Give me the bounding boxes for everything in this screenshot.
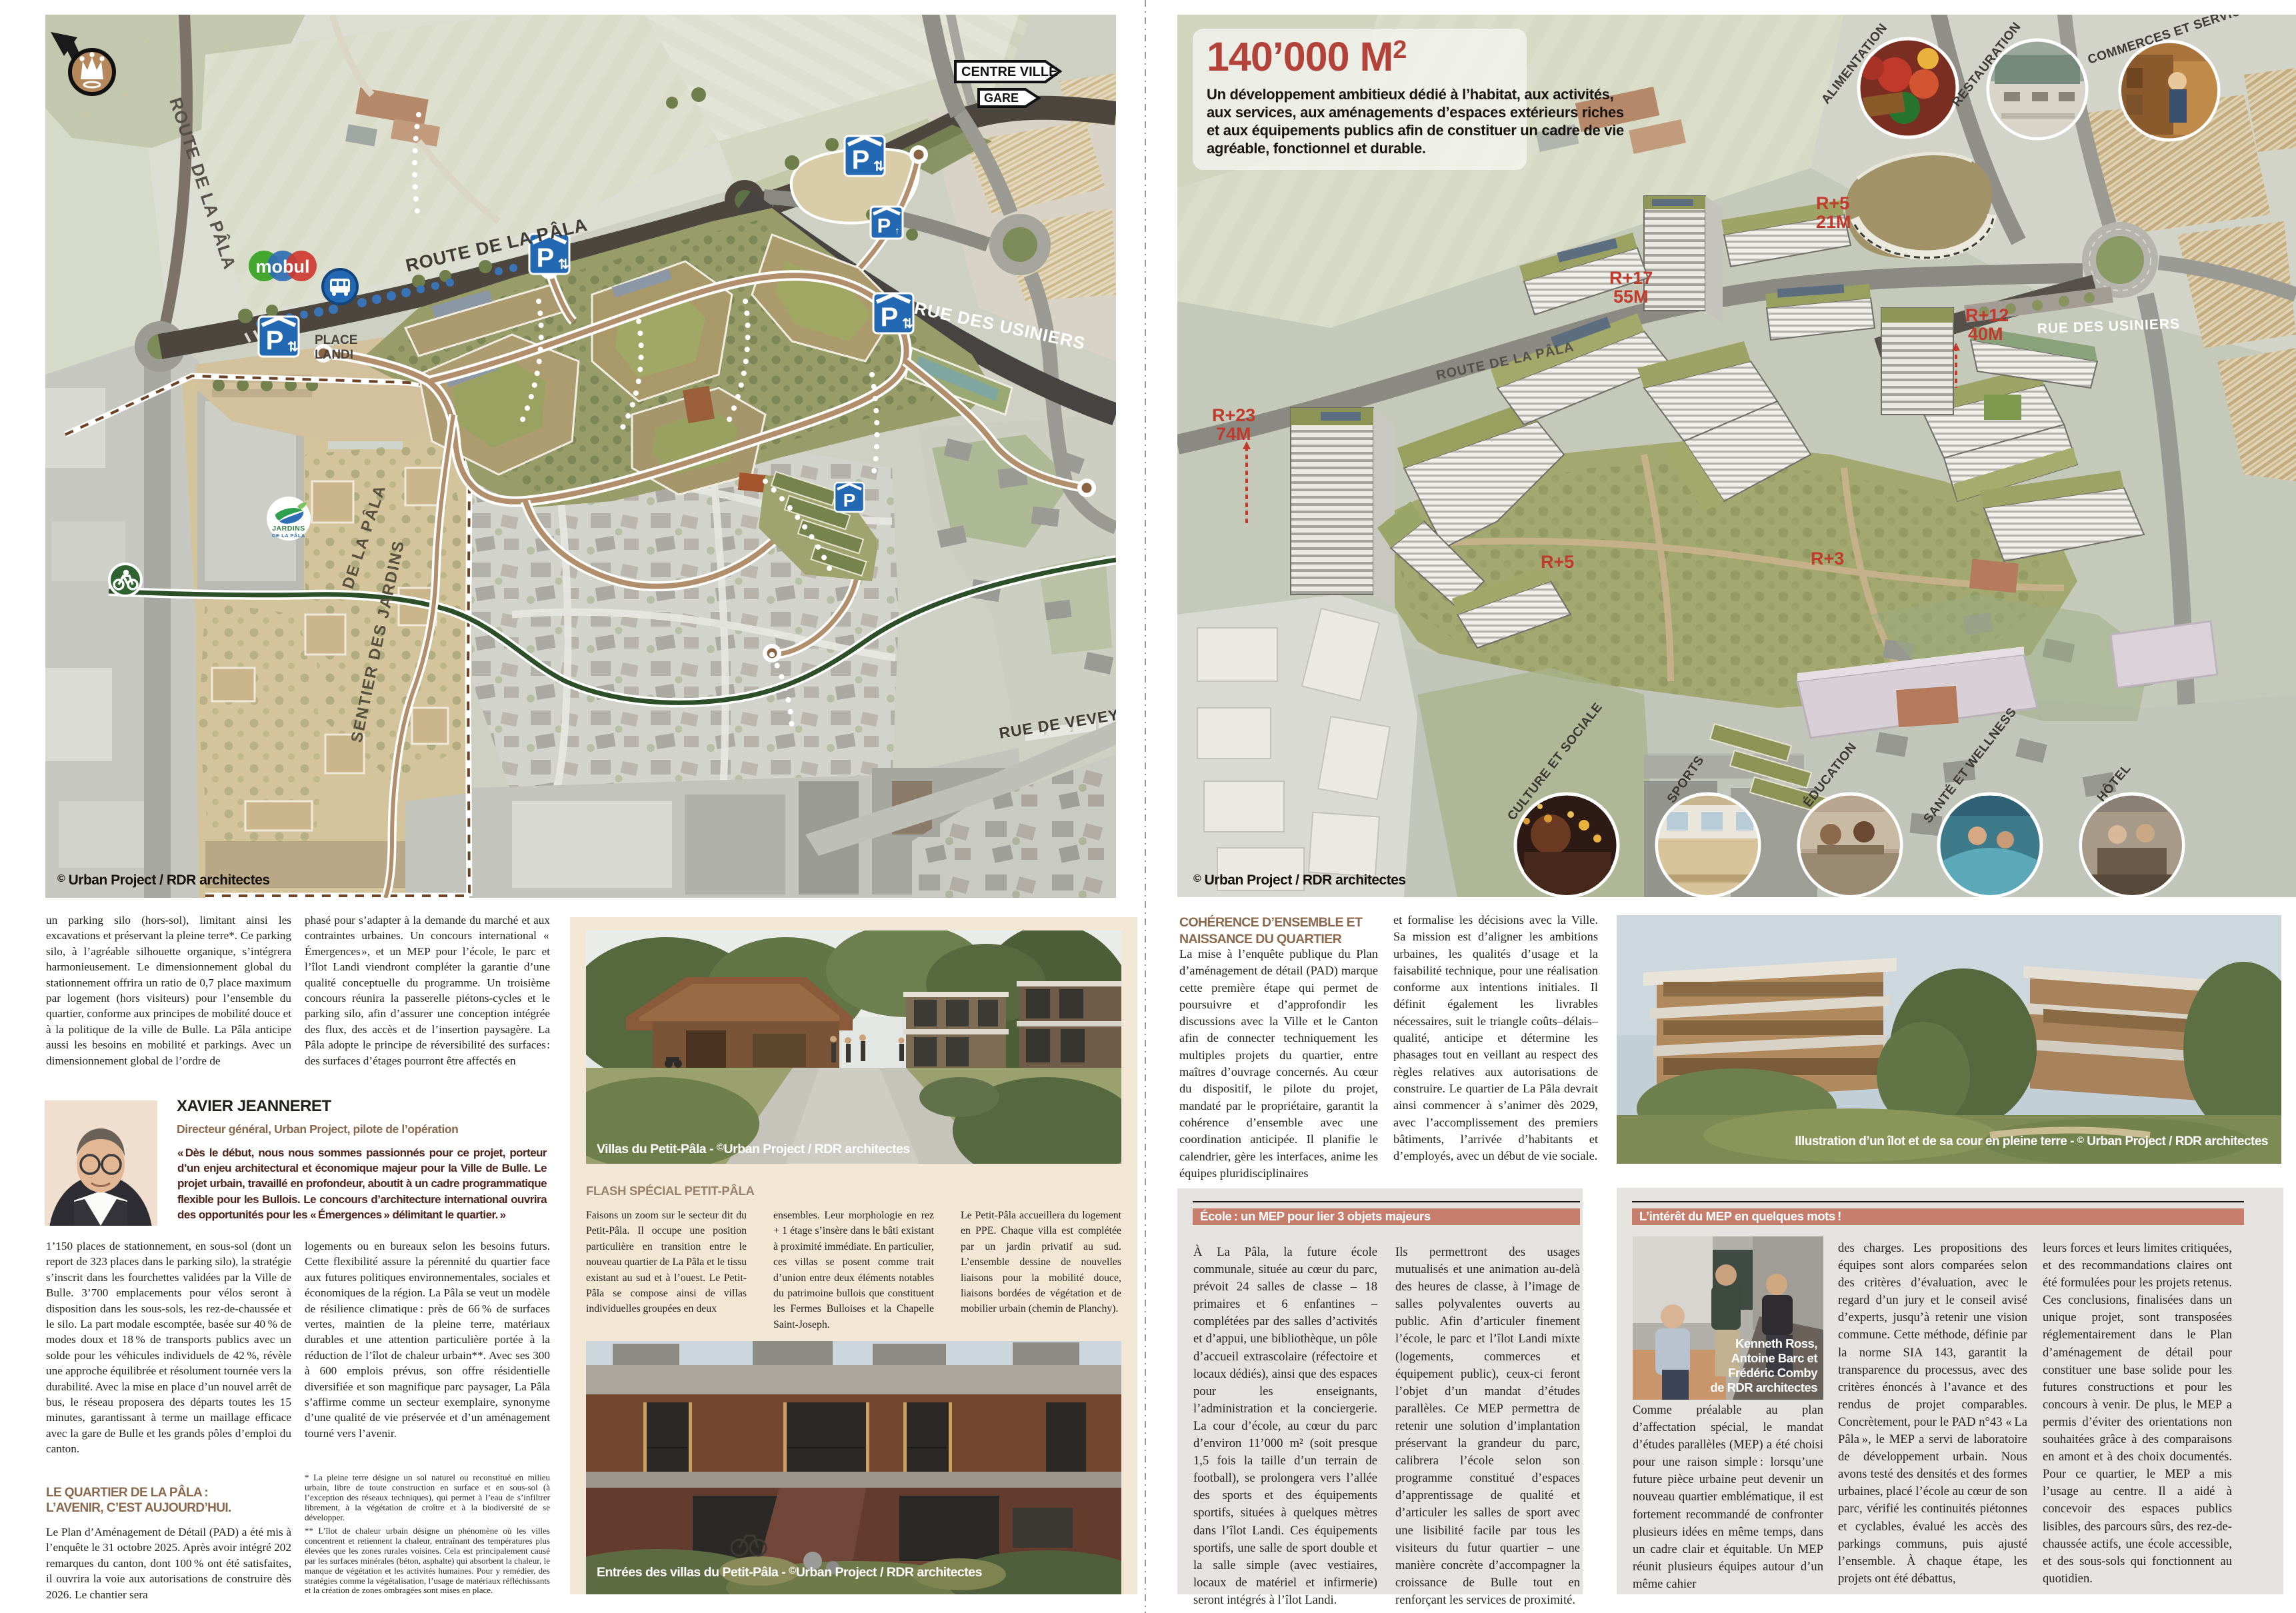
svg-text:DE LA PÂLA: DE LA PÂLA — [272, 533, 305, 539]
svg-text:P: P — [852, 145, 870, 175]
svg-text:LANDI: LANDI — [315, 348, 353, 362]
svg-text:agréable, fonctionnel et durab: agréable, fonctionnel et durable. — [1207, 140, 1426, 157]
svg-text:74M: 74M — [1216, 424, 1251, 444]
svg-text:⇅: ⇅ — [902, 317, 913, 331]
svg-text:R+12: R+12 — [1965, 305, 2009, 325]
svg-text:P: P — [881, 303, 899, 332]
svg-text:Un développement ambitieux déd: Un développement ambitieux dédié à l’hab… — [1207, 86, 1613, 103]
svg-text:R+23: R+23 — [1212, 405, 1255, 425]
svg-text:R+3: R+3 — [1811, 549, 1844, 569]
svg-text:55M: 55M — [1613, 287, 1649, 307]
svg-text:© Urban Project / RDR architec: © Urban Project / RDR architectes — [57, 872, 270, 888]
svg-text:↑: ↑ — [895, 225, 900, 237]
svg-text:21M: 21M — [1816, 212, 1851, 232]
svg-text:JARDINS: JARDINS — [272, 525, 305, 533]
svg-text:PLACE: PLACE — [315, 333, 357, 347]
svg-text:R+5: R+5 — [1816, 193, 1849, 213]
svg-text:© Urban Project / RDR architec: © Urban Project / RDR architectes — [1193, 872, 1406, 888]
svg-text:⇅: ⇅ — [287, 340, 299, 355]
svg-text:mobul: mobul — [256, 257, 310, 277]
svg-text:CENTRE VILLE: CENTRE VILLE — [961, 65, 1057, 79]
svg-text:40M: 40M — [1968, 324, 2003, 344]
svg-text:140’000 M2: 140’000 M2 — [1207, 34, 1406, 79]
svg-text:P: P — [266, 326, 284, 355]
svg-text:aux services, aux aménagements: aux services, aux aménagements d’espaces… — [1207, 104, 1624, 121]
svg-text:P: P — [537, 243, 555, 273]
svg-text:P: P — [877, 214, 891, 237]
svg-text:R+5: R+5 — [1541, 552, 1574, 572]
svg-text:et aux équipements publics afi: et aux équipements publics afin de const… — [1207, 122, 1624, 139]
svg-text:R+17: R+17 — [1609, 268, 1653, 288]
svg-text:⇅: ⇅ — [873, 159, 885, 174]
svg-text:GARE: GARE — [984, 91, 1019, 105]
svg-text:⇅: ⇅ — [558, 257, 569, 272]
svg-text:P: P — [843, 490, 856, 511]
